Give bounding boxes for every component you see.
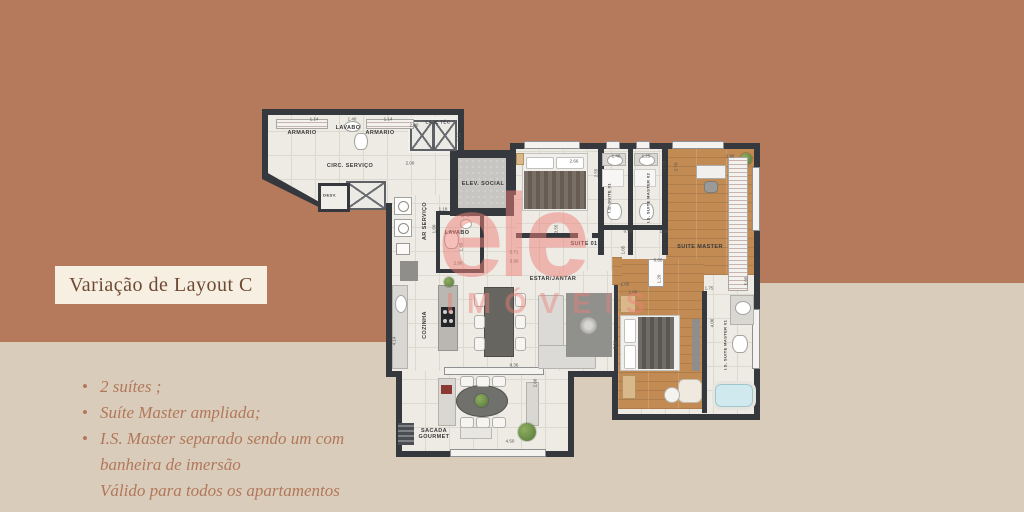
dim-label: 1.75 <box>705 286 714 291</box>
layout-title-box: Variação de Layout C <box>55 266 267 304</box>
room-label-is-suite-master-02: I.S. SUITE MASTER 02 <box>646 173 651 223</box>
room-label-lavabo: LAVABO <box>445 230 470 236</box>
dim-label: 1.40 <box>612 154 621 159</box>
dim-label: 3.55 <box>554 225 559 234</box>
room-label-cozinha: COZINHA <box>422 311 428 339</box>
dim-label: 1.14 <box>384 117 393 122</box>
dim-label: 1.60 <box>432 225 437 234</box>
dim-label: 2.70 <box>674 163 679 172</box>
dim-label: 3.90 <box>510 259 519 264</box>
room-label-is-suite-master-01: I.S. SUITE MASTER 01 <box>723 320 728 370</box>
dim-label: 1.40 <box>348 117 357 122</box>
plan-labels: ARMARIOLAVABOARMARIOCIRC. SERVIÇODESV.LA… <box>262 95 762 463</box>
dim-label: 1.24 <box>660 229 669 234</box>
room-label-armario-1: ARMARIO <box>287 130 316 136</box>
dim-label: 8.36 <box>510 363 519 368</box>
dim-label: 1.25 <box>642 154 651 159</box>
dim-label: 2.00 <box>410 123 419 128</box>
layout-title: Variação de Layout C <box>69 274 253 297</box>
marketing-floorplan-page: Variação de Layout C 2 suítes ;Suíte Mas… <box>0 0 1024 512</box>
room-label-is-suite-01: I.S. SUITE 01 <box>607 183 612 213</box>
dim-label: 5.05 <box>744 277 749 286</box>
dim-label: 2.66 <box>533 379 538 388</box>
floorplan: ARMARIOLAVABOARMARIOCIRC. SERVIÇODESV.LA… <box>262 95 762 463</box>
dim-label: 1.65 <box>459 243 464 252</box>
dim-label: 2.55 <box>662 161 667 170</box>
dim-label: 1.05 <box>621 246 626 255</box>
room-label-lavabo-servico: LAVABO <box>336 125 361 131</box>
room-label-ar-servico: AR SERVIÇO <box>422 202 428 240</box>
dim-label: 4.50 <box>506 439 515 444</box>
dim-label: 2.55 <box>594 169 599 178</box>
dim-label: 0.80 <box>654 258 663 263</box>
dim-label: 4.06 <box>710 319 715 328</box>
dim-label: 1.18 <box>439 207 448 212</box>
dim-label: 2.90 <box>454 261 463 266</box>
notes-footnote: Válido para todos os apartamentos <box>78 478 388 504</box>
room-label-suite-master: SUITE MASTER <box>677 244 723 250</box>
dim-label: 1.68 <box>629 290 638 295</box>
dim-label: 1.20 <box>657 275 662 284</box>
dim-label: 1.42 <box>461 213 470 218</box>
room-label-circ-servico: CIRC. SERVIÇO <box>327 163 373 169</box>
dim-label: 5.71 <box>510 250 519 255</box>
dim-label: 2.00 <box>406 161 415 166</box>
room-label-desv: DESV. <box>323 193 337 198</box>
room-label-sacada-gourmet: SACADA GOURMET <box>411 428 457 440</box>
dim-label: 4.14 <box>392 337 397 346</box>
room-label-estar-jantar: ESTAR/JANTAR <box>530 276 576 282</box>
room-label-armario-2: ARMARIO <box>365 130 394 136</box>
dim-label: 1.14 <box>310 117 319 122</box>
room-label-elev-social: ELEV. SOCIAL <box>462 181 505 187</box>
room-label-suite-01: SUITE 01 <box>570 241 597 247</box>
dim-label: 1.10 <box>457 133 462 142</box>
room-label-laje-tec: LAJE TÉC <box>426 120 451 125</box>
dim-label: 2.66 <box>570 159 579 164</box>
dim-label: 0.90 <box>624 229 633 234</box>
dim-label: 2.90 <box>726 154 735 159</box>
dim-label: 2.00 <box>613 341 618 350</box>
dim-label: 1.65 <box>621 282 630 287</box>
